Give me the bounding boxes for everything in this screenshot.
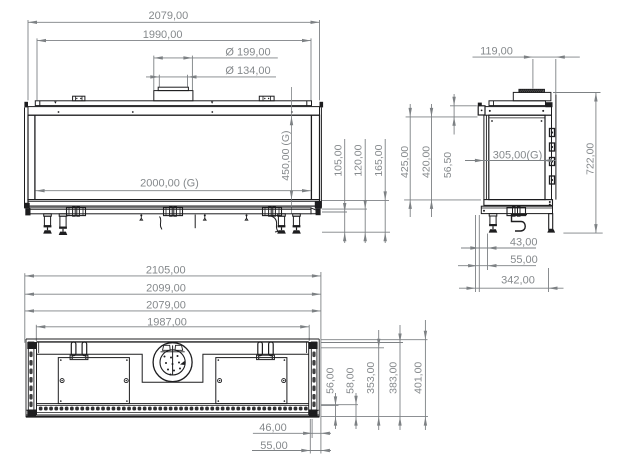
svg-text:342,00: 342,00 — [501, 275, 535, 287]
svg-text:55,00: 55,00 — [510, 254, 538, 266]
svg-text:722,00: 722,00 — [585, 143, 597, 175]
svg-text:353,00: 353,00 — [365, 362, 377, 394]
svg-text:120,00: 120,00 — [353, 144, 365, 176]
svg-text:119,00: 119,00 — [480, 46, 513, 58]
svg-text:46,00: 46,00 — [259, 422, 287, 434]
svg-text:Ø 199,00: Ø 199,00 — [225, 46, 270, 58]
svg-text:2000,00 (G): 2000,00 (G) — [140, 177, 199, 189]
svg-text:2099,00: 2099,00 — [146, 283, 186, 295]
svg-text:2079,00: 2079,00 — [146, 300, 186, 312]
svg-text:55,00: 55,00 — [260, 440, 288, 452]
svg-text:2105,00: 2105,00 — [146, 265, 186, 277]
svg-text:165,00: 165,00 — [373, 144, 385, 176]
svg-text:450,00 (G): 450,00 (G) — [280, 130, 292, 180]
svg-text:1990,00: 1990,00 — [143, 29, 183, 41]
svg-text:105,00: 105,00 — [332, 144, 344, 176]
svg-text:383,00: 383,00 — [388, 362, 400, 394]
svg-text:305,00(G): 305,00(G) — [493, 149, 543, 161]
svg-text:Ø 134,00: Ø 134,00 — [225, 65, 270, 77]
svg-text:401,00: 401,00 — [413, 362, 425, 394]
svg-text:58,00: 58,00 — [345, 367, 357, 393]
svg-text:56,50: 56,50 — [442, 152, 454, 178]
svg-text:2079,00: 2079,00 — [149, 10, 189, 22]
svg-text:56,00: 56,00 — [324, 367, 336, 393]
svg-text:420,00: 420,00 — [420, 146, 432, 178]
svg-text:43,00: 43,00 — [510, 237, 538, 249]
svg-text:425,00: 425,00 — [399, 146, 411, 178]
